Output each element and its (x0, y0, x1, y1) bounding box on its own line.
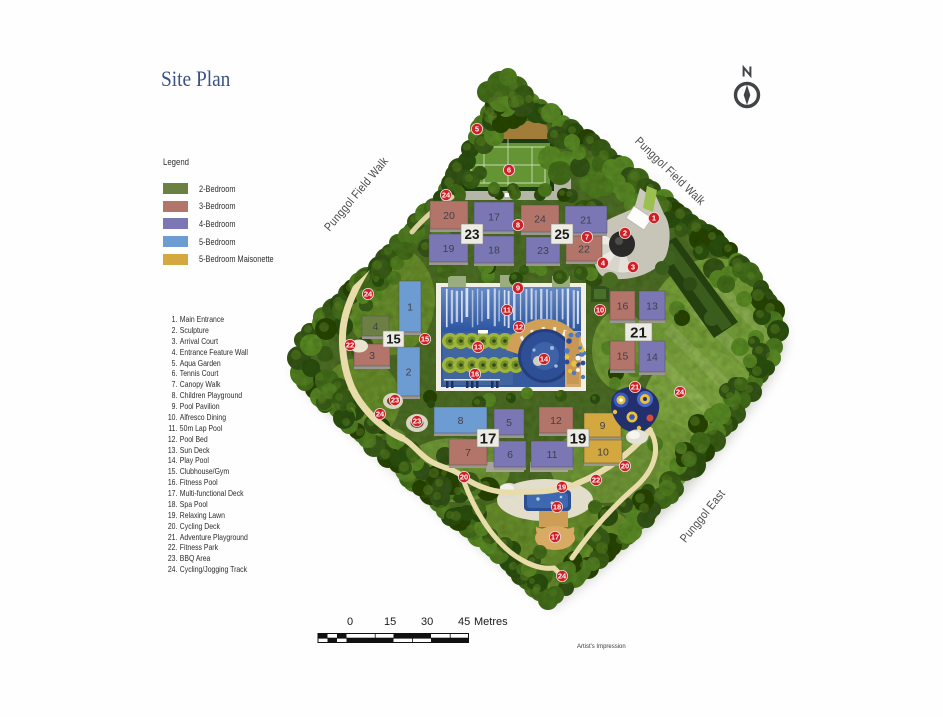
svg-text:14: 14 (646, 351, 658, 363)
svg-text:9: 9 (516, 284, 520, 293)
svg-text:12: 12 (515, 323, 523, 332)
svg-text:15: 15 (421, 335, 429, 344)
svg-text:21: 21 (580, 214, 592, 226)
svg-text:3: 3 (369, 350, 375, 362)
svg-text:6: 6 (507, 449, 513, 461)
svg-text:15: 15 (617, 350, 629, 362)
svg-text:7: 7 (465, 447, 471, 459)
svg-text:2: 2 (406, 366, 412, 378)
svg-text:14: 14 (540, 355, 549, 364)
svg-text:18: 18 (553, 503, 561, 512)
svg-text:17: 17 (488, 211, 500, 223)
svg-text:22: 22 (592, 476, 600, 485)
svg-text:15: 15 (386, 332, 400, 347)
svg-text:23: 23 (464, 227, 480, 242)
svg-text:19: 19 (558, 483, 566, 492)
svg-text:24: 24 (376, 410, 385, 419)
svg-text:10: 10 (597, 446, 609, 458)
svg-text:17: 17 (480, 430, 497, 447)
svg-text:24: 24 (364, 290, 373, 299)
svg-text:22: 22 (346, 341, 354, 350)
svg-text:11: 11 (503, 306, 511, 315)
svg-text:24: 24 (676, 388, 685, 397)
svg-text:20: 20 (443, 210, 455, 222)
svg-text:24: 24 (534, 213, 546, 225)
svg-text:21: 21 (631, 383, 639, 392)
svg-text:5: 5 (506, 417, 512, 429)
svg-text:9: 9 (600, 420, 606, 432)
svg-text:6: 6 (507, 166, 511, 175)
svg-text:23: 23 (391, 396, 399, 405)
svg-text:18: 18 (488, 244, 500, 256)
svg-text:8: 8 (458, 415, 464, 427)
svg-text:13: 13 (646, 300, 658, 312)
svg-text:1: 1 (407, 301, 413, 313)
svg-text:17: 17 (551, 533, 559, 542)
svg-text:16: 16 (617, 300, 629, 312)
svg-text:19: 19 (570, 430, 587, 447)
svg-text:4: 4 (373, 321, 379, 333)
svg-text:11: 11 (547, 449, 558, 461)
svg-text:22: 22 (578, 243, 590, 255)
svg-text:24: 24 (442, 191, 451, 200)
svg-text:8: 8 (516, 221, 520, 230)
svg-text:24: 24 (558, 572, 567, 581)
svg-text:20: 20 (621, 462, 629, 471)
svg-text:7: 7 (585, 233, 589, 242)
svg-text:13: 13 (474, 343, 482, 352)
svg-text:19: 19 (443, 243, 455, 255)
svg-text:12: 12 (550, 415, 562, 427)
svg-text:2: 2 (623, 229, 627, 238)
svg-text:23: 23 (413, 417, 421, 426)
svg-text:1: 1 (652, 214, 656, 223)
svg-text:25: 25 (554, 227, 570, 242)
svg-text:10: 10 (596, 306, 604, 315)
svg-text:3: 3 (631, 263, 635, 272)
svg-text:5: 5 (475, 125, 479, 134)
svg-text:21: 21 (630, 324, 647, 341)
svg-text:16: 16 (471, 370, 479, 379)
svg-text:20: 20 (460, 473, 468, 482)
svg-text:23: 23 (537, 245, 549, 257)
